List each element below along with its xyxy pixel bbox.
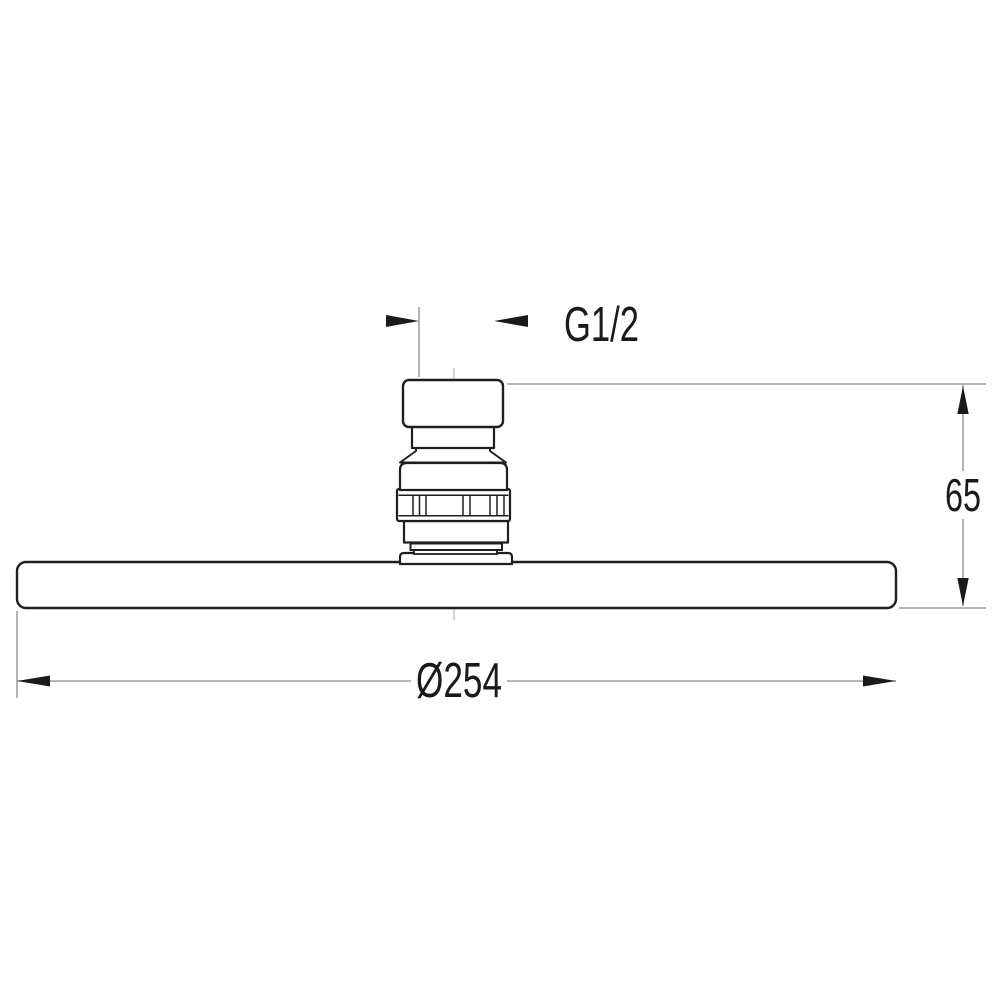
connector-flare <box>400 447 506 463</box>
diameter-arrow-left-icon <box>17 676 50 687</box>
thread-dimension-label: G1/2 <box>564 298 639 352</box>
height-arrow-down-icon <box>957 578 968 606</box>
connector-neck <box>412 426 494 448</box>
height-dimension-label: 65 <box>945 469 981 521</box>
showerhead-disc <box>17 562 896 608</box>
connector-cap-upper <box>400 463 507 490</box>
diameter-dimension-label: Ø254 <box>416 654 502 708</box>
showerhead-technical-drawing: G1/2 65 Ø254 <box>0 0 1000 1000</box>
thread-inlet-block <box>403 380 503 427</box>
connector-thin-ring-upper <box>411 544 503 551</box>
knurled-nut-ring <box>397 489 510 521</box>
diameter-arrow-right-icon <box>863 676 896 687</box>
connector-cap-lower <box>404 521 508 543</box>
thread-arrow-right-icon <box>386 315 419 327</box>
technical-drawing-page: G1/2 65 Ø254 <box>0 0 1000 1000</box>
thread-arrow-left-icon <box>494 315 528 327</box>
height-arrow-up-icon <box>957 386 968 414</box>
